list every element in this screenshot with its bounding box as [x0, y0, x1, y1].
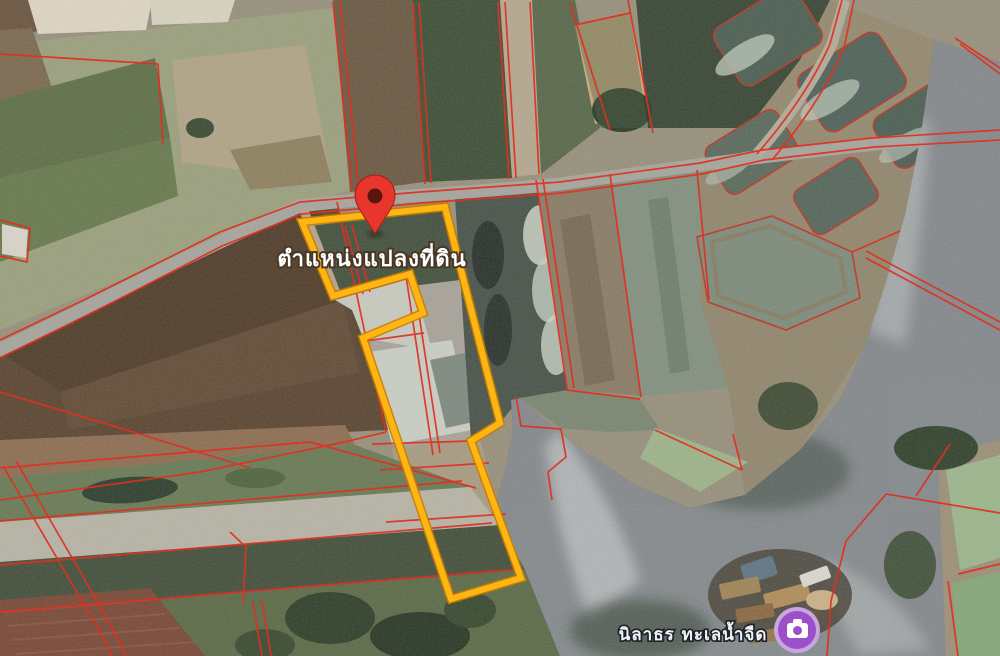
satellite-map[interactable]: ตำแหน่งแปลงที่ดิน นิลาธร ทะเลน้ำจืด	[0, 0, 1000, 656]
poi-place-label[interactable]: นิลาธร ทะเลน้ำจืด	[619, 621, 768, 645]
camera-icon[interactable]	[774, 607, 820, 653]
plot-location-label: ตำแหน่งแปลงที่ดิน	[277, 242, 466, 272]
image-grain	[0, 0, 1000, 656]
